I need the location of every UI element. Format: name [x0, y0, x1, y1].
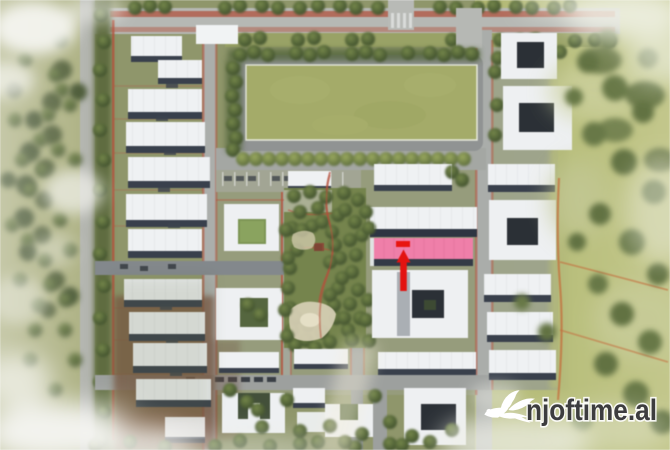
svg-text:njoftime.al: njoftime.al	[526, 394, 657, 427]
